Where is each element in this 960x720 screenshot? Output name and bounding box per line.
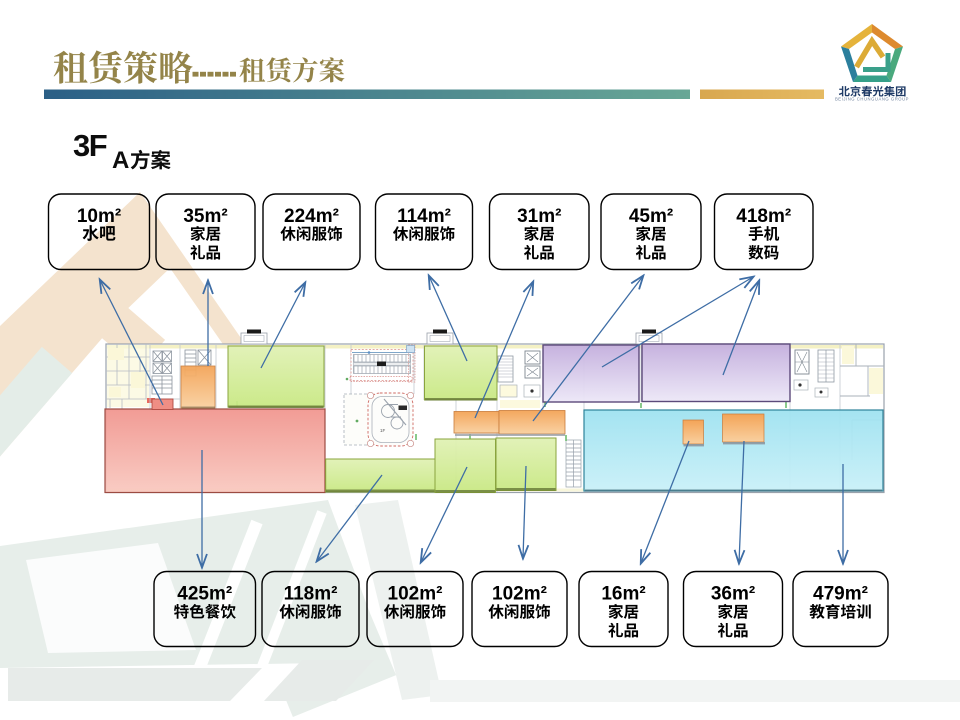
svg-text:102m²: 102m² — [388, 584, 443, 605]
svg-text:45m²: 45m² — [629, 206, 673, 227]
svg-text:A: A — [112, 147, 129, 174]
svg-text:10m²: 10m² — [77, 206, 121, 227]
svg-text:3F: 3F — [73, 128, 107, 163]
svg-text:425m²: 425m² — [177, 584, 232, 605]
svg-text:35m²: 35m² — [183, 206, 227, 227]
svg-text:1F: 1F — [380, 428, 386, 433]
svg-text:102m²: 102m² — [492, 584, 547, 605]
svg-text:BEIJING CHUNGUANG GROUP: BEIJING CHUNGUANG GROUP — [835, 97, 909, 102]
svg-text:31m²: 31m² — [517, 206, 561, 227]
svg-text:36m²: 36m² — [711, 584, 755, 605]
svg-text:114m²: 114m² — [397, 206, 451, 227]
svg-text:16m²: 16m² — [601, 584, 645, 605]
svg-text:118m²: 118m² — [284, 584, 338, 605]
svg-text:479m²: 479m² — [813, 584, 868, 605]
svg-text:418m²: 418m² — [736, 206, 791, 227]
svg-text:224m²: 224m² — [284, 206, 339, 227]
